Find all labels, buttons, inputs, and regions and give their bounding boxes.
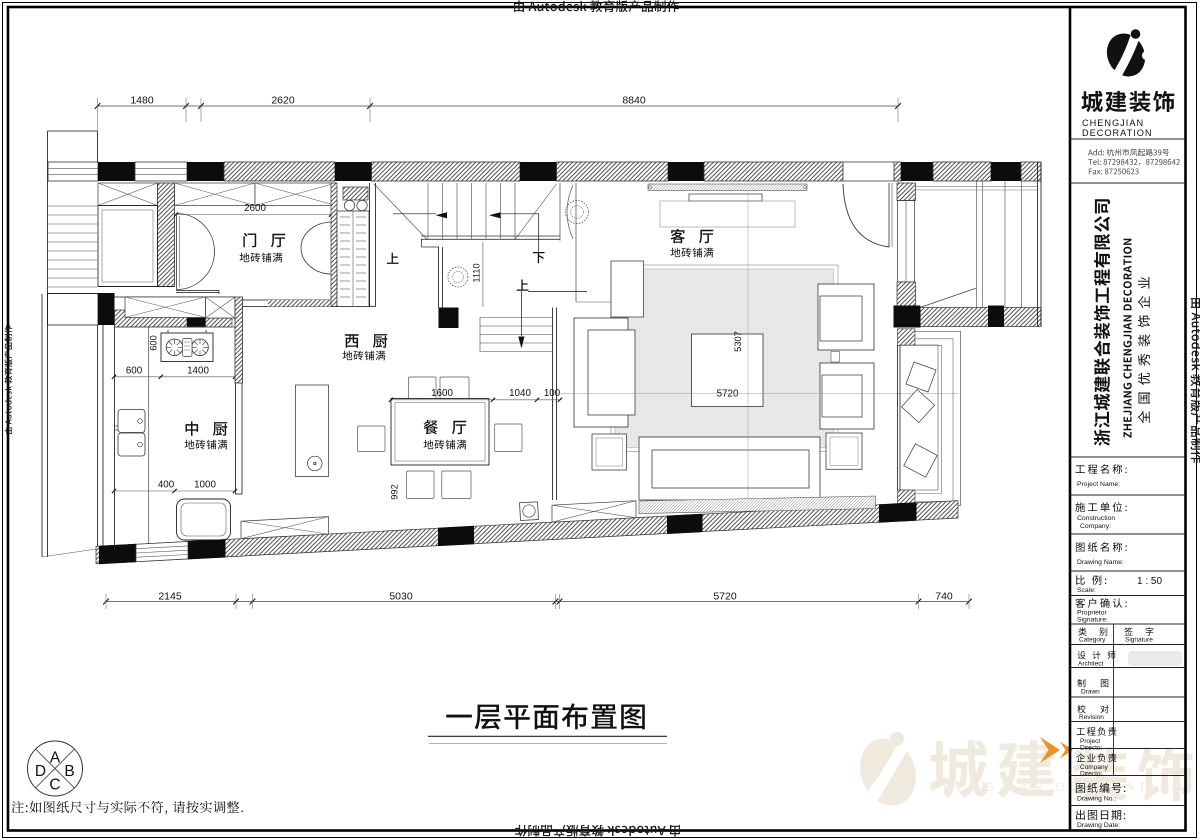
svg-text:B: B [64,763,74,780]
svg-text:CHENGJIAN DECORATION: CHENGJIAN DECORATION [929,780,1189,794]
svg-text:Directo:: Directo: [1080,745,1103,752]
svg-text:2600: 2600 [244,203,266,214]
svg-text:600: 600 [126,365,143,376]
svg-text:5720: 5720 [717,389,739,400]
svg-text:1040: 1040 [509,388,531,399]
svg-text:D: D [35,763,46,780]
svg-text:A: A [50,750,61,767]
svg-text:740: 740 [935,591,953,603]
svg-text:5720: 5720 [713,591,737,603]
svg-text:Scale:: Scale: [1077,587,1096,594]
svg-text:Proprietor: Proprietor [1077,610,1108,617]
svg-text:C: C [49,777,60,794]
svg-text:5030: 5030 [389,591,413,603]
svg-text:992: 992 [390,484,400,500]
svg-text:DECORATION: DECORATION [1082,128,1153,138]
svg-text:600: 600 [149,335,159,351]
svg-text:400: 400 [158,480,175,491]
svg-text:Drawing Date:: Drawing Date: [1077,822,1120,829]
svg-text:Drawing No.:: Drawing No.: [1077,796,1116,803]
svg-text:1 : 50: 1 : 50 [1137,576,1162,587]
svg-text:1000: 1000 [194,480,216,491]
svg-text:1400: 1400 [187,365,209,376]
svg-text:8840: 8840 [622,95,646,107]
svg-text:CHENGJIAN: CHENGJIAN [1082,118,1144,128]
svg-text:2620: 2620 [271,95,295,107]
svg-text:Signature:: Signature: [1077,617,1108,624]
svg-text:Drawing Name:: Drawing Name: [1077,559,1124,566]
svg-text:Project Name:: Project Name: [1077,481,1120,488]
svg-text:Directo:: Directo: [1080,771,1103,778]
svg-text:Signature: Signature [1125,637,1153,644]
svg-text:Revision: Revision [1079,714,1104,721]
svg-text:1600: 1600 [431,388,453,399]
svg-text:Company:: Company: [1080,523,1111,530]
svg-text:Construction: Construction [1077,515,1115,522]
svg-text:5307: 5307 [733,331,743,352]
svg-text:1480: 1480 [130,95,154,107]
svg-text:2145: 2145 [158,591,182,603]
svg-text:Drawn: Drawn [1081,689,1100,696]
svg-text:Category: Category [1079,637,1106,644]
svg-text:Architect: Architect [1078,661,1103,668]
svg-text:1110: 1110 [472,263,482,282]
